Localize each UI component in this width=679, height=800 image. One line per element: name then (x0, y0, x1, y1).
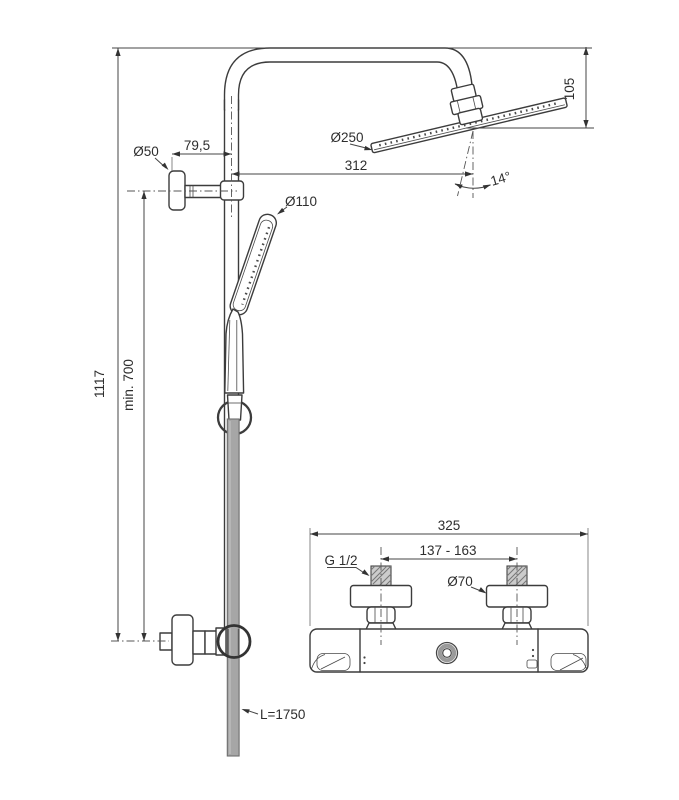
label-hose-length: L=1750 (242, 707, 306, 722)
head-tilt-label: 14° (489, 169, 513, 189)
min-height-label: min. 700 (121, 359, 136, 411)
connection-thread-label: G 1/2 (324, 553, 357, 568)
escutcheon-diameter-label: Ø70 (447, 574, 473, 589)
head-drop-label: 105 (562, 78, 577, 101)
bracket-diameter-label: Ø50 (133, 144, 159, 159)
shower-system-dimension-drawing: 1117 min. 700 79,5 Ø50 Ø110 (0, 0, 679, 800)
bottom-bracket-nut-2 (205, 631, 217, 654)
inlet-spacing-label: 137 - 163 (419, 543, 476, 558)
dim-total-height: 1117 (92, 48, 121, 641)
bottom-bracket-nut-1 (193, 631, 205, 654)
hose-body (227, 419, 239, 756)
dim-mixer-width: 325 (310, 518, 588, 626)
ball-joint (447, 83, 486, 126)
shower-arm (225, 48, 475, 110)
dim-head-reach: 312 (232, 158, 474, 177)
rainhead-diameter-label: Ø250 (330, 130, 363, 145)
label-handshower-diameter: Ø110 (277, 194, 317, 215)
label-bracket-diameter: Ø50 (133, 144, 168, 170)
handshower-diameter-label: Ø110 (285, 194, 317, 209)
dim-head-tilt: 14° (455, 169, 513, 190)
shower-hose (227, 419, 239, 756)
hand-shower-handle (225, 309, 244, 393)
dim-bracket-offset: 79,5 (172, 138, 232, 171)
rain-head (371, 83, 568, 153)
hose-length-label: L=1750 (260, 707, 305, 722)
dim-min-height: min. 700 (121, 191, 147, 641)
diverter-button (437, 643, 458, 664)
dim-inlet-spacing: 137 - 163 (381, 543, 517, 562)
label-escutcheon-diameter: Ø70 (447, 574, 486, 594)
technical-drawing: 1117 min. 700 79,5 Ø50 Ø110 (0, 0, 679, 800)
head-reach-label: 312 (345, 158, 368, 173)
hand-shower-nut (228, 395, 243, 420)
bracket-offset-label: 79,5 (184, 138, 210, 153)
mixer-width-label: 325 (438, 518, 461, 533)
slider-block (221, 181, 244, 200)
bottom-bracket-wall-fitting (160, 633, 172, 650)
label-rainhead-diameter: Ø250 (330, 130, 372, 150)
total-height-label: 1117 (92, 370, 107, 398)
bottom-bracket-flange (172, 615, 193, 665)
top-bracket-arm (185, 186, 222, 198)
label-connection-thread: G 1/2 (324, 553, 369, 576)
top-bracket-flange (169, 171, 185, 210)
